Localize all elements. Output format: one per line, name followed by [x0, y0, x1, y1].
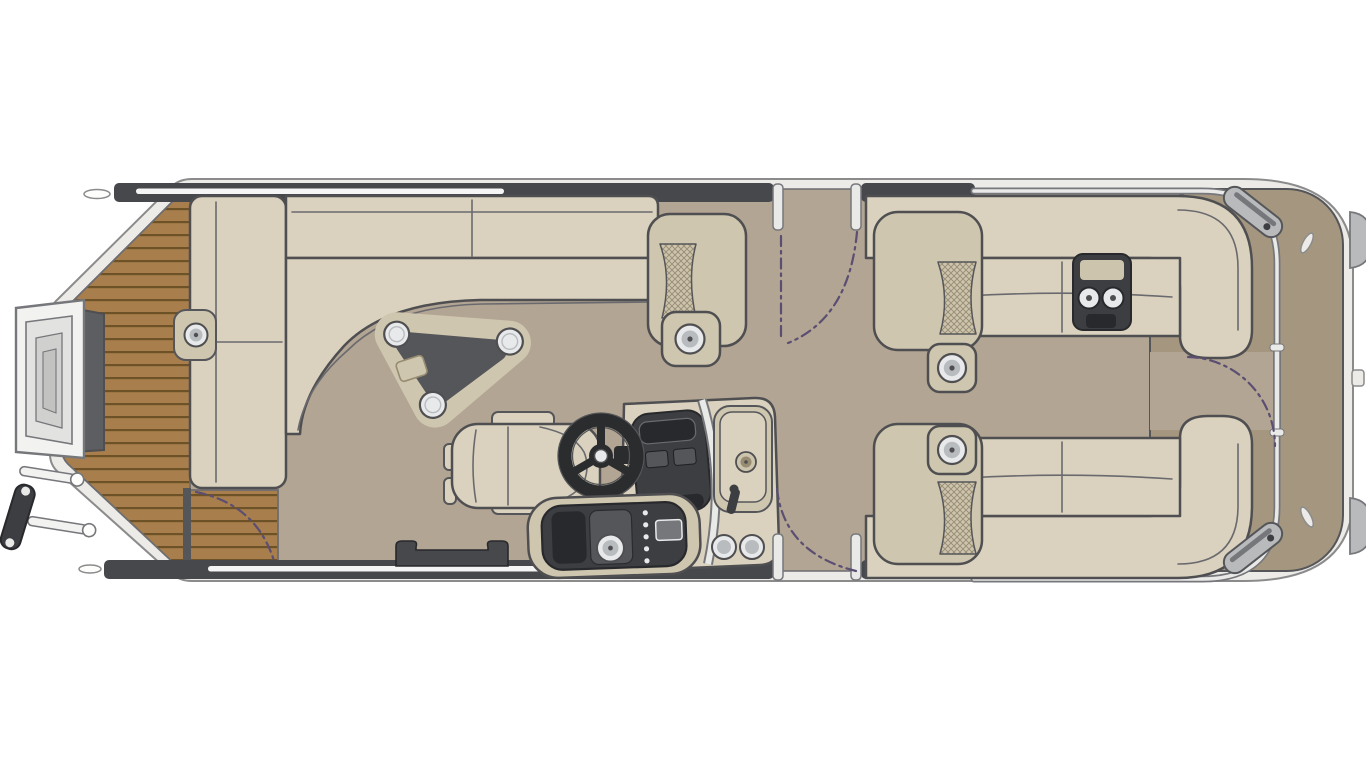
- aft-console-tray: [1080, 260, 1124, 280]
- bow-cleat-bottom: [79, 565, 101, 573]
- helm-sink: [714, 406, 772, 515]
- bow-cleat-top: [84, 190, 110, 199]
- pontoon-floorplan-diagram: [0, 0, 1366, 769]
- aft-top-cupholder-dot: [949, 365, 954, 370]
- motor-mount-bottom: [1350, 498, 1366, 554]
- rear-gate-hinge-bottom: [1270, 429, 1284, 436]
- aft-console-latch: [1086, 314, 1116, 328]
- aft-bottom-cupholder-dot: [949, 447, 954, 452]
- top-rail-highlight: [136, 189, 504, 195]
- bottom-gate-post-right: [851, 534, 861, 580]
- bow-step-tread-3: [43, 349, 56, 413]
- top-gate-post-left: [773, 184, 783, 230]
- stereo-display: [656, 520, 683, 541]
- motor-mount-top: [1350, 212, 1366, 268]
- bow-gate-post: [183, 488, 191, 572]
- rear-gate-hinge-top: [1270, 344, 1284, 351]
- bench-cupholder-dot: [194, 333, 198, 337]
- aft-console-cupholders: [1073, 254, 1131, 330]
- top-gate-post-right: [851, 184, 861, 230]
- steering-wheel: [558, 413, 644, 499]
- helm-cupholder-left-mid: [717, 540, 731, 554]
- aft-console-cup-left-dot: [1086, 295, 1092, 301]
- bow-armrest-cupholder-dot: [687, 336, 692, 341]
- bottom-gate-post-left: [773, 534, 783, 580]
- wheel-hub-cap: [595, 450, 608, 463]
- pontoon-floorplan-canvas: [0, 0, 1366, 769]
- bow-boarding-steps: [16, 300, 104, 458]
- aft-console-cup-right-dot: [1110, 295, 1116, 301]
- stern-center-tab: [1352, 370, 1364, 386]
- helm-gauge-cluster: [639, 418, 697, 445]
- sink-faucet-head: [730, 485, 739, 494]
- helm-cupholder-right-mid: [745, 540, 759, 554]
- aft-port-lounge: [866, 416, 1252, 578]
- stereo-left-panel: [551, 511, 587, 564]
- sink-drain-dot: [744, 460, 748, 464]
- helm-gauge-left: [645, 450, 668, 468]
- stereo-console: [527, 493, 702, 579]
- aft-top-seat: [958, 258, 1180, 336]
- port-bow-bench: [174, 196, 286, 488]
- helm-gauge-right: [673, 448, 696, 466]
